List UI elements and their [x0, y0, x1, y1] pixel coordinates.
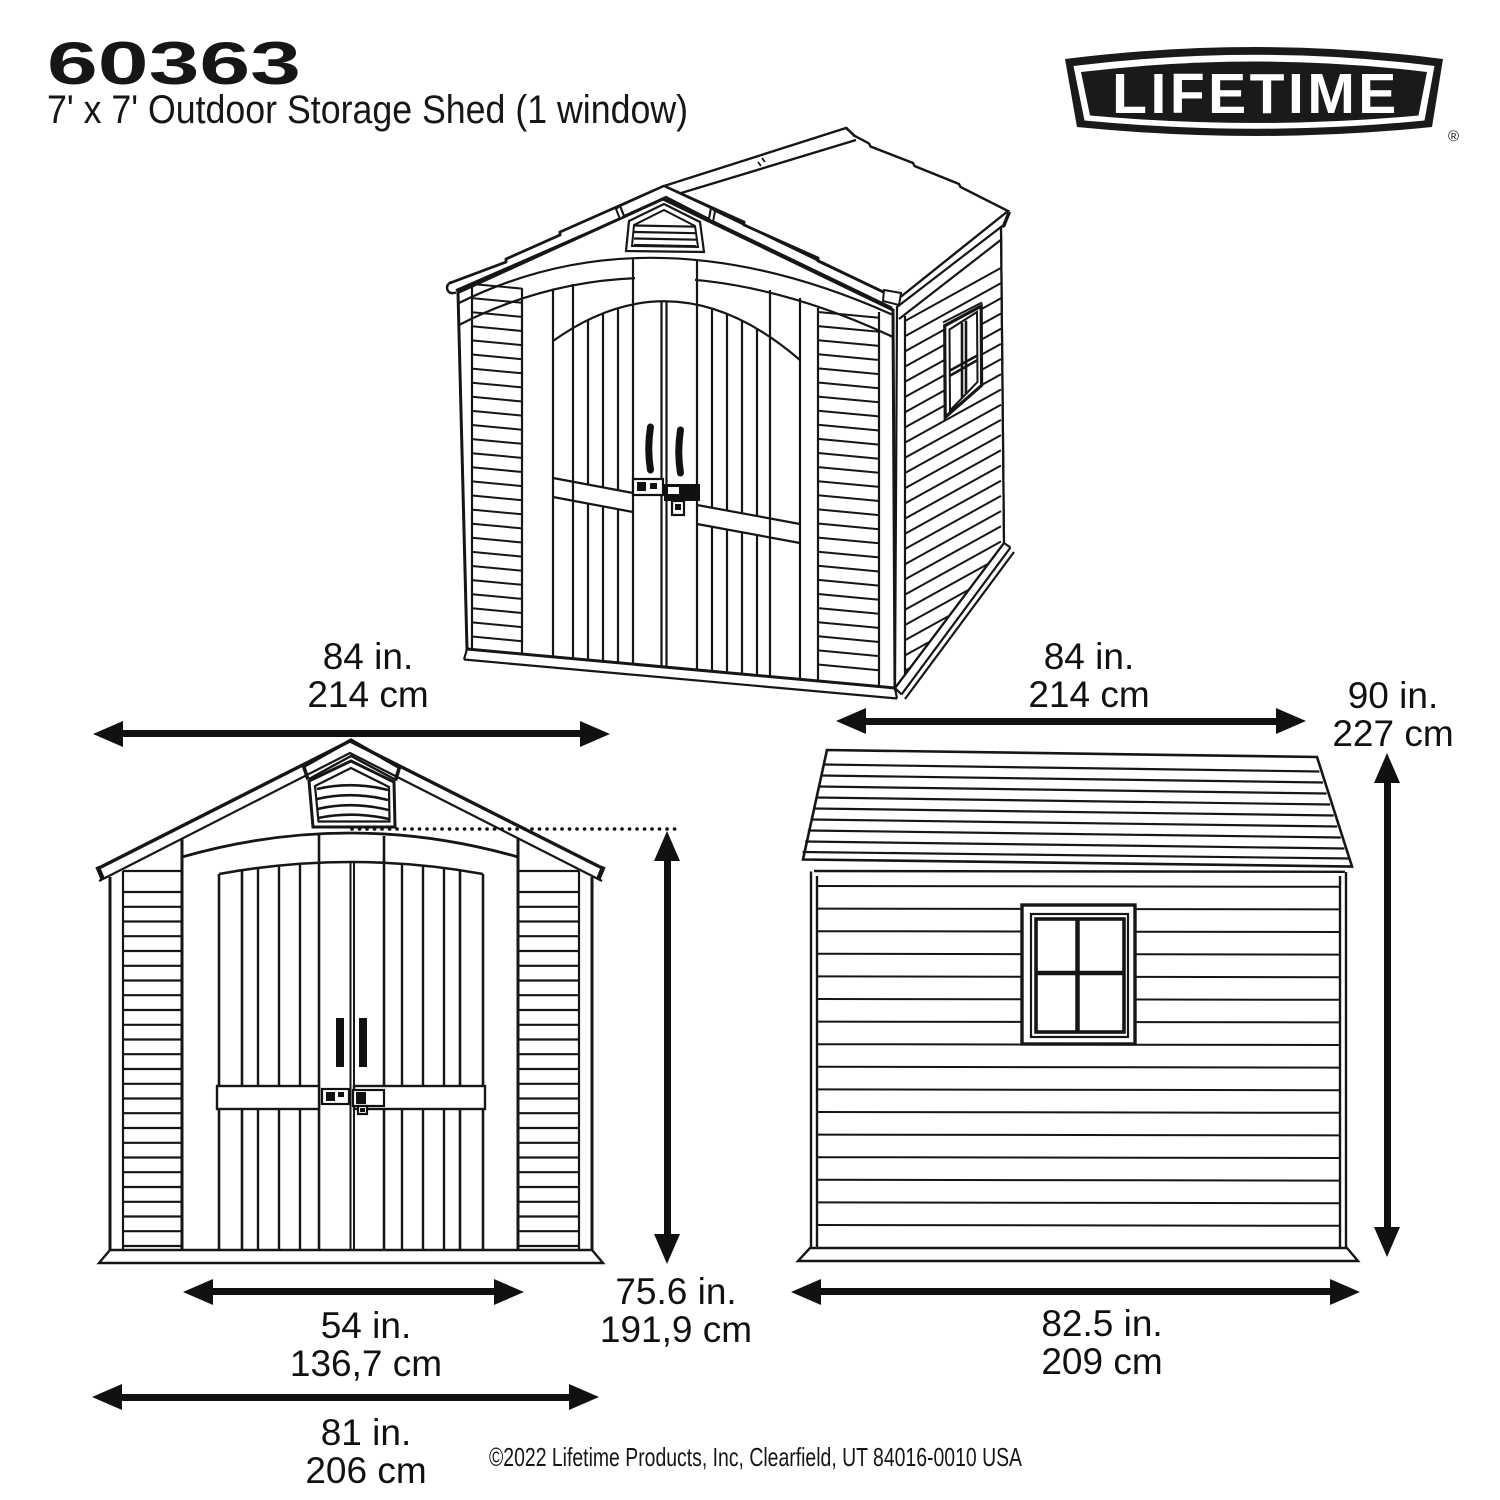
svg-text:206 cm: 206 cm: [305, 1450, 426, 1491]
svg-text:209 cm: 209 cm: [1041, 1341, 1162, 1382]
svg-text:LIFETIME: LIFETIME: [1112, 62, 1400, 126]
svg-text:84 in.: 84 in.: [1044, 636, 1135, 677]
svg-text:82.5 in.: 82.5 in.: [1041, 1303, 1162, 1344]
svg-text:81 in.: 81 in.: [321, 1412, 412, 1453]
svg-text:191,9 cm: 191,9 cm: [600, 1309, 752, 1350]
svg-text:7' x 7' Outdoor Storage Shed (: 7' x 7' Outdoor Storage Shed (1 window): [47, 88, 688, 132]
svg-text:®: ®: [1448, 128, 1459, 145]
svg-text:©2022 Lifetime Products, Inc,: ©2022 Lifetime Products, Inc, Clearfield…: [489, 1442, 1022, 1472]
svg-text:214 cm: 214 cm: [307, 674, 428, 715]
svg-text:84 in.: 84 in.: [323, 636, 414, 677]
svg-text:214 cm: 214 cm: [1028, 674, 1149, 715]
svg-text:54 in.: 54 in.: [321, 1305, 412, 1346]
svg-text:90 in.: 90 in.: [1348, 675, 1439, 716]
svg-text:136,7 cm: 136,7 cm: [290, 1343, 442, 1384]
svg-text:60363: 60363: [47, 30, 301, 97]
svg-text:75.6 in.: 75.6 in.: [615, 1271, 736, 1312]
svg-text:227 cm: 227 cm: [1332, 713, 1453, 754]
